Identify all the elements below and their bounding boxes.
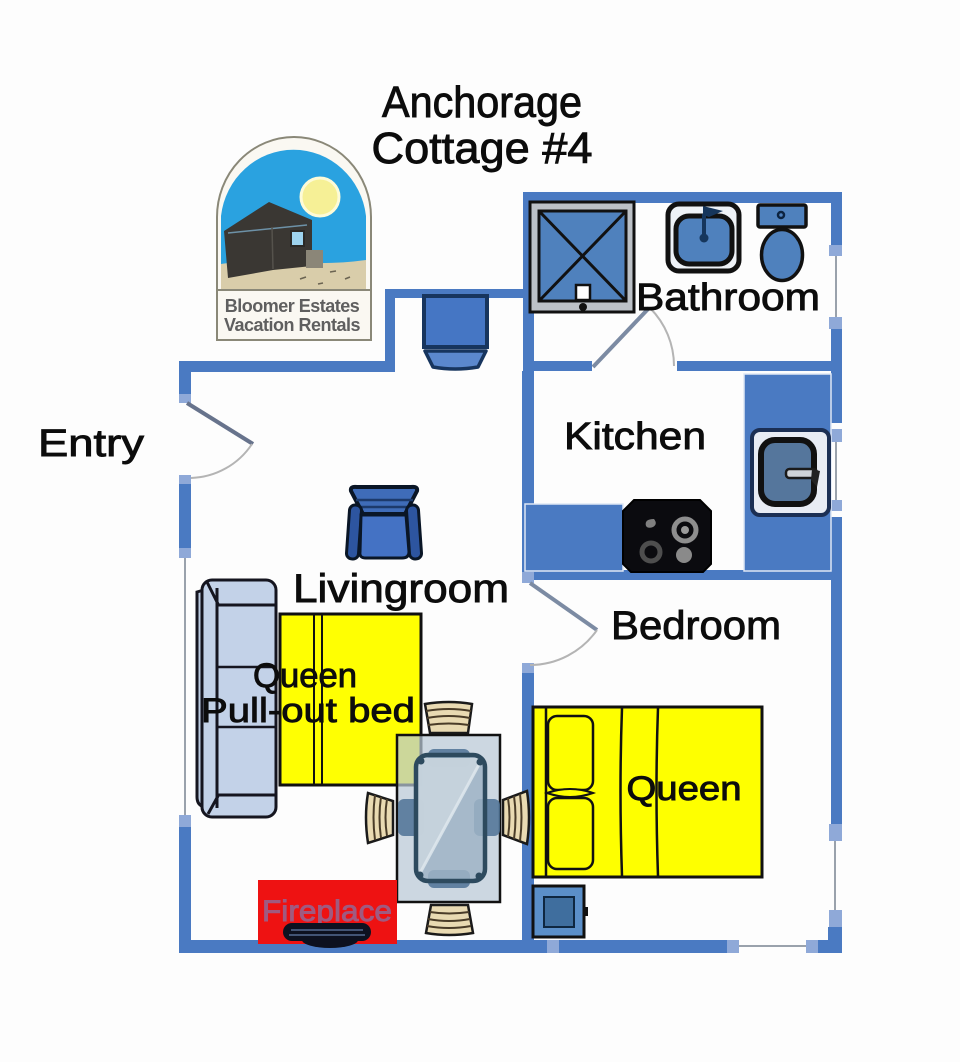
svg-text:Anchorage: Anchorage — [382, 78, 582, 127]
svg-text:Queen: Queen — [253, 657, 357, 695]
svg-text:Kitchen: Kitchen — [564, 416, 706, 458]
svg-text:Bathroom: Bathroom — [636, 277, 820, 319]
svg-text:Queen: Queen — [627, 770, 742, 808]
svg-text:Cottage #4: Cottage #4 — [372, 124, 593, 173]
svg-text:Bloomer Estates: Bloomer Estates — [225, 296, 360, 316]
svg-text:Bedroom: Bedroom — [611, 604, 781, 648]
svg-text:Pull-out bed: Pull-out bed — [201, 692, 415, 730]
svg-text:Livingroom: Livingroom — [293, 567, 509, 611]
svg-text:Vacation Rentals: Vacation Rentals — [224, 315, 361, 335]
svg-text:Entry: Entry — [38, 423, 144, 465]
